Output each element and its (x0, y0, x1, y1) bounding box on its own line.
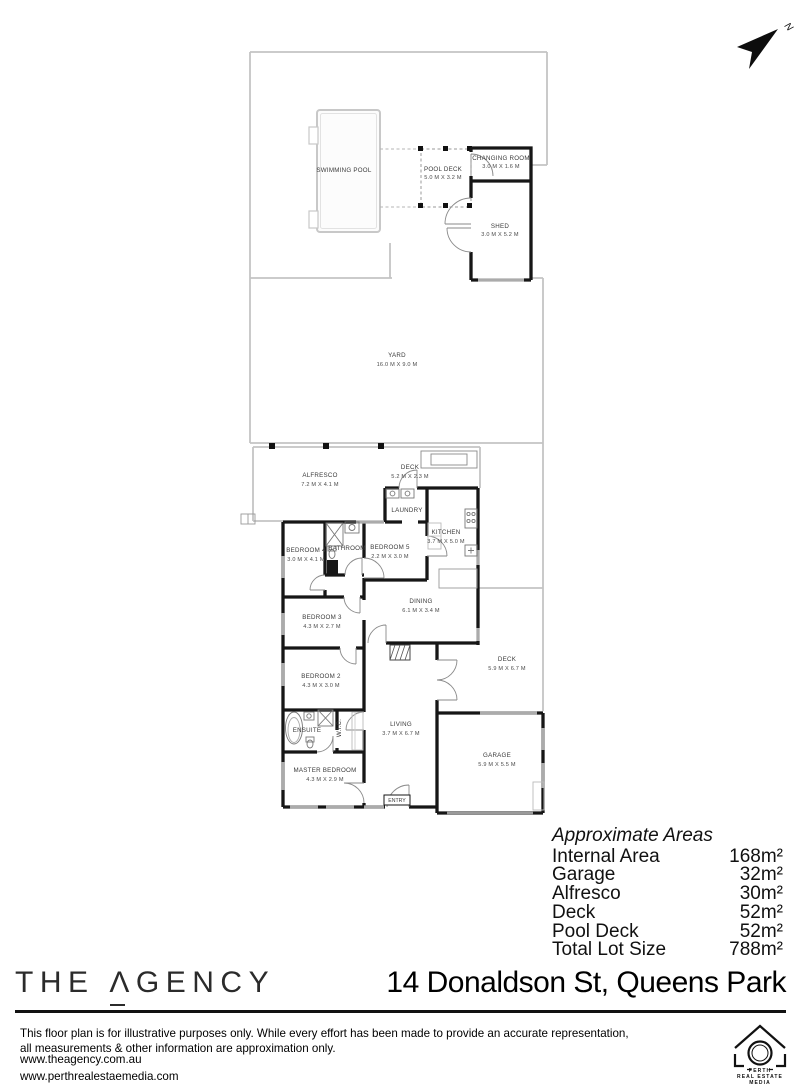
svg-text:DINING: DINING (409, 598, 432, 605)
svg-text:2.2 M X 3.0 M: 2.2 M X 3.0 M (371, 554, 409, 560)
svg-text:SHED: SHED (491, 223, 509, 230)
room-label-laundry: LAUNDRY (391, 507, 422, 514)
svg-text:ENSUITE: ENSUITE (293, 727, 322, 734)
agency-underscore (110, 1004, 125, 1006)
svg-text:YARD: YARD (388, 352, 406, 359)
svg-text:5.9 M X 5.5 M: 5.9 M X 5.5 M (478, 762, 516, 768)
website-links: www.theagency.com.au www.perthrealestaem… (20, 1052, 179, 1085)
svg-text:3.0 M X 1.6 M: 3.0 M X 1.6 M (482, 164, 520, 170)
room-label-bathroom: BATHROOM (328, 545, 365, 552)
agency-logo: THE ΛGENCY (15, 966, 275, 1000)
media-logo-line-3: MEDIA (749, 1080, 771, 1084)
real-estate-media-logo: PERTH REAL ESTATE MEDIA (727, 1018, 793, 1084)
areas-row-deck: Deck52m² (552, 904, 783, 923)
room-label-shed: SHED3.0 M X 5.2 M (481, 223, 519, 238)
room-label-dining: DINING6.1 M X 3.4 M (402, 598, 440, 614)
windows (283, 280, 543, 807)
media-website-link[interactable]: www.perthrealestaemedia.com (20, 1069, 179, 1086)
svg-text:POOL DECK: POOL DECK (424, 166, 463, 173)
area-label: Alfresco (552, 885, 621, 904)
svg-text:LIVING: LIVING (390, 721, 412, 728)
room-label-bedroom-3: BEDROOM 34.3 M X 2.7 M (302, 614, 342, 630)
divider-rule (15, 1010, 786, 1013)
svg-text:3.7 M X 6.7 M: 3.7 M X 6.7 M (382, 731, 420, 737)
room-label-changing-room: CHANGING ROOM3.0 M X 1.6 M (472, 155, 530, 170)
area-value: 788m² (729, 941, 783, 960)
room-label-bedroom-5: BEDROOM 52.2 M X 3.0 M (370, 544, 410, 560)
svg-text:6.1 M X 3.4 M: 6.1 M X 3.4 M (402, 608, 440, 614)
room-label-bedroom-4: BEDROOM 43.0 M X 4.1 M (286, 547, 326, 563)
svg-text:KITCHEN: KITCHEN (432, 529, 461, 536)
approximate-areas: Approximate Areas Internal Area168m² Gar… (552, 827, 783, 960)
property-address: 14 Donaldson St, Queens Park (386, 966, 786, 1000)
room-label-ensuite: ENSUITE (293, 727, 322, 734)
brand-rest: GENCY (136, 966, 275, 999)
fireplace (390, 645, 410, 660)
svg-text:SWIMMING POOL: SWIMMING POOL (316, 167, 371, 174)
svg-text:4.3 M X 2.7 M: 4.3 M X 2.7 M (303, 624, 341, 630)
footer-bar: THE ΛGENCY 14 Donaldson St, Queens Park (15, 966, 786, 1000)
svg-text:BEDROOM 3: BEDROOM 3 (302, 614, 342, 621)
area-label: Deck (552, 904, 595, 923)
svg-text:ALFRESCO: ALFRESCO (302, 472, 337, 479)
room-label-pool-deck: POOL DECK5.0 M X 3.2 M (424, 166, 463, 181)
svg-text:4.3 M X 3.0 M: 4.3 M X 3.0 M (302, 683, 340, 689)
svg-text:W.I.C.: W.I.C. (336, 719, 343, 737)
svg-text:5.9 M X 6.7 M: 5.9 M X 6.7 M (488, 666, 526, 672)
room-label-bedroom-2: BEDROOM 24.3 M X 3.0 M (301, 673, 341, 689)
boundary-lines (250, 52, 547, 711)
svg-text:GARAGE: GARAGE (483, 752, 511, 759)
disclaimer-line-1: This floor plan is for illustrative purp… (20, 1026, 629, 1041)
north-label: N (782, 21, 796, 34)
pool-step-top (309, 127, 318, 144)
room-label-alfresco: ALFRESCO7.2 M X 4.1 M (301, 472, 339, 488)
compass: N (737, 21, 795, 69)
room-label-deck-top: DECK5.2 M X 2.3 M (391, 464, 429, 480)
area-value: 52m² (740, 904, 783, 923)
area-value: 30m² (740, 885, 783, 904)
areas-row-alfresco: Alfresco30m² (552, 885, 783, 904)
areas-title: Approximate Areas (552, 827, 783, 846)
linen-cupboard (327, 560, 338, 575)
svg-text:3.0 M X 4.1 M: 3.0 M X 4.1 M (287, 557, 325, 563)
property-boundary (250, 52, 547, 711)
svg-text:DECK: DECK (498, 656, 517, 663)
svg-text:BEDROOM 5: BEDROOM 5 (370, 544, 410, 551)
svg-text:16.0 M X 9.0 M: 16.0 M X 9.0 M (377, 362, 418, 368)
areas-row-total-lot: Total Lot Size788m² (552, 941, 783, 960)
svg-text:3.7 M X 5.0 M: 3.7 M X 5.0 M (427, 539, 465, 545)
pool-deck-connectors (380, 149, 421, 207)
room-label-living: LIVING3.7 M X 6.7 M (382, 721, 420, 737)
svg-text:3.0 M X 5.2 M: 3.0 M X 5.2 M (481, 232, 519, 238)
brand-letter-a: Λ (109, 966, 136, 1000)
svg-text:LAUNDRY: LAUNDRY (391, 507, 422, 514)
svg-text:BATHROOM: BATHROOM (328, 545, 365, 552)
pool-step-bottom (309, 211, 318, 228)
area-label: Total Lot Size (552, 941, 666, 960)
north-arrow-icon (737, 29, 778, 69)
svg-text:ENTRY: ENTRY (388, 798, 406, 804)
svg-text:CHANGING ROOM: CHANGING ROOM (472, 155, 530, 162)
house-camera-icon (735, 1026, 785, 1070)
room-label-wic: W.I.C. (336, 719, 343, 737)
room-label-swimming-pool: SWIMMING POOL (316, 167, 371, 174)
room-label-garage: GARAGE5.9 M X 5.5 M (478, 752, 516, 768)
svg-text:4.3 M X 2.9 M: 4.3 M X 2.9 M (306, 777, 344, 783)
svg-text:BEDROOM 2: BEDROOM 2 (301, 673, 341, 680)
agency-website-link[interactable]: www.theagency.com.au (20, 1052, 179, 1069)
svg-text:DECK: DECK (401, 464, 420, 471)
svg-text:MASTER BEDROOM: MASTER BEDROOM (294, 767, 357, 774)
svg-text:5.0 M X 3.2 M: 5.0 M X 3.2 M (424, 175, 462, 181)
svg-text:5.2 M X 2.3 M: 5.2 M X 2.3 M (391, 474, 429, 480)
svg-text:BEDROOM 4: BEDROOM 4 (286, 547, 326, 554)
room-labels: SWIMMING POOL POOL DECK5.0 M X 3.2 M CHA… (286, 155, 529, 804)
room-label-yard: YARD16.0 M X 9.0 M (377, 352, 418, 368)
room-label-entry: ENTRY (388, 798, 406, 804)
room-label-deck-right: DECK5.9 M X 6.7 M (488, 656, 526, 672)
floorplan-svg: N (0, 0, 800, 825)
brand-the: THE (15, 966, 95, 999)
room-label-master-bedroom: MASTER BEDROOM4.3 M X 2.9 M (294, 767, 357, 783)
svg-text:7.2 M X 4.1 M: 7.2 M X 4.1 M (301, 482, 339, 488)
